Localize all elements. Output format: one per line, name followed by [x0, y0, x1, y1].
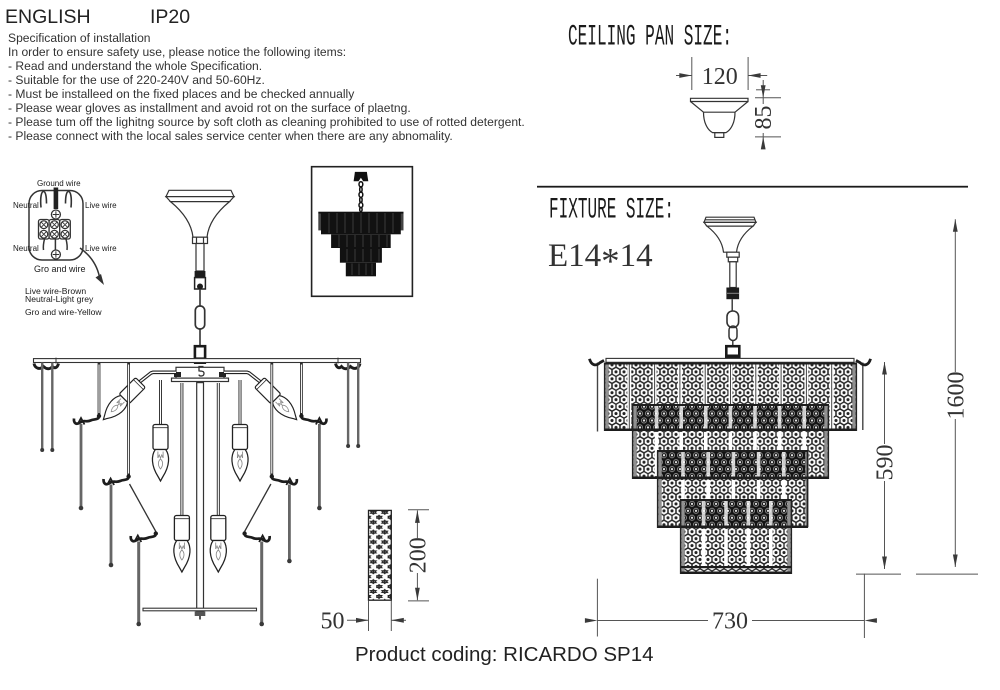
svg-text:Neutral: Neutral [13, 201, 39, 210]
svg-text:- Must be installeed on the fi: - Must be installeed on the fixed places… [8, 87, 355, 101]
svg-text:Neutral: Neutral [13, 244, 39, 253]
svg-text:Product coding: RICARDO SP14: Product coding: RICARDO SP14 [355, 643, 654, 666]
svg-text:In order to ensure safety use,: In order to ensure safety use, please no… [8, 45, 346, 59]
svg-text:FIXTURE SIZE:: FIXTURE SIZE: [549, 193, 674, 227]
svg-text:120: 120 [702, 64, 738, 90]
svg-text:590: 590 [873, 445, 899, 481]
svg-text:Gro and wire: Gro and wire [34, 264, 86, 274]
svg-text:ENGLISH: ENGLISH [5, 6, 91, 28]
svg-text:- Suitable for the use of 220-: - Suitable for the use of 220-240V and 5… [8, 73, 265, 87]
svg-text:Neutral-Light grey: Neutral-Light grey [25, 294, 94, 304]
svg-text:Ground wire: Ground wire [37, 179, 81, 188]
svg-text:50: 50 [321, 609, 345, 635]
svg-text:1600: 1600 [943, 372, 969, 420]
svg-text:Live wire: Live wire [85, 244, 117, 253]
svg-text:- Read and understand the whol: - Read and understand the whole Specific… [8, 59, 262, 73]
svg-text:730: 730 [712, 609, 748, 635]
svg-text:85: 85 [751, 106, 777, 130]
svg-text:200: 200 [405, 537, 431, 573]
svg-text:- Please wear gloves as instal: - Please wear gloves as installment and … [8, 101, 411, 115]
svg-text:CEILING PAN SIZE:: CEILING PAN SIZE: [568, 20, 732, 54]
svg-text:IP20: IP20 [150, 6, 190, 28]
svg-text:- Please tum off the lighitng: - Please tum off the lighitng source by … [8, 115, 525, 129]
svg-text:Live wire: Live wire [85, 201, 117, 210]
svg-text:- Please connect with the loca: - Please connect with the local sales se… [8, 129, 453, 143]
svg-text:Gro and wire-Yellow: Gro and wire-Yellow [25, 307, 102, 317]
svg-text:Specification of installation: Specification of installation [8, 31, 151, 45]
